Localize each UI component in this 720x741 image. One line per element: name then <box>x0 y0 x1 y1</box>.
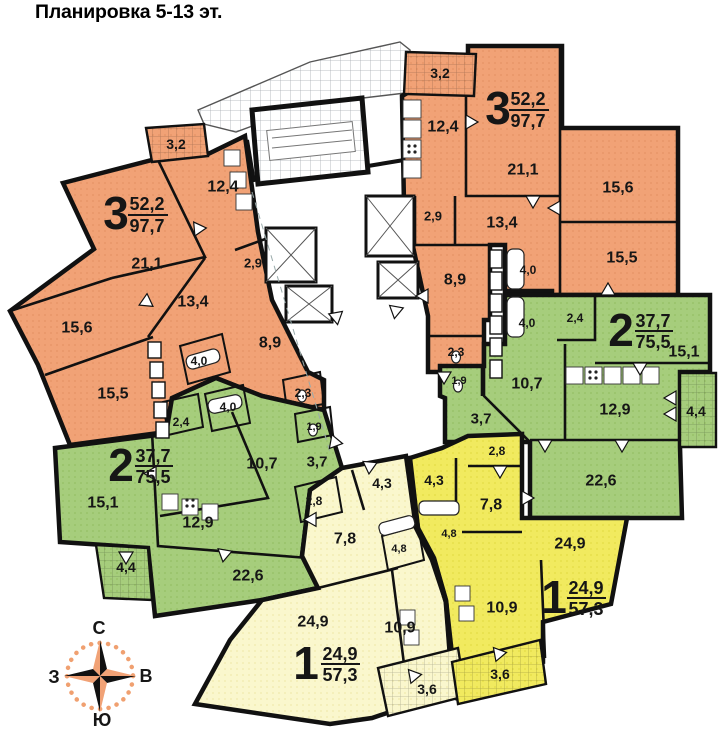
apartment-area-living: 52,2 <box>129 194 164 214</box>
apartment-type-label: 3 <box>103 187 129 239</box>
room-label: 4,0 <box>220 400 237 414</box>
apartment-type-label: 2 <box>108 439 134 491</box>
room-label: 2,9 <box>244 256 262 271</box>
room-label: 2,4 <box>173 415 190 429</box>
room-label: 3,6 <box>490 666 510 682</box>
elevator-shaft <box>266 228 316 282</box>
room-label: 4,3 <box>424 472 444 488</box>
room-label: 3,7 <box>471 411 492 428</box>
room-label: 2,9 <box>424 209 442 224</box>
bathtub-icon <box>419 501 459 515</box>
apartment-area-total: 97,7 <box>129 216 164 236</box>
room-label: 2,4 <box>567 311 584 325</box>
room-label: 3,2 <box>166 136 186 152</box>
apartment-type-label: 1 <box>293 637 319 689</box>
apartment-area-living: 52,2 <box>510 89 545 109</box>
room-label: 15,1 <box>87 495 118 512</box>
room-label: 10,9 <box>384 620 415 637</box>
room-label: 15,5 <box>97 386 128 403</box>
room-label: 4,4 <box>116 559 136 575</box>
compass-letter: Ю <box>93 710 112 730</box>
apartment-area-total: 75,5 <box>635 332 670 352</box>
room-label: 15,6 <box>602 180 633 197</box>
apartment-area-living: 37,7 <box>635 311 670 331</box>
apartment-type-label: 3 <box>485 82 511 134</box>
room-label: 3,7 <box>307 454 328 471</box>
room-label: 21,1 <box>131 256 162 273</box>
room-label: 24,9 <box>297 614 328 631</box>
apartment-area-total: 75,5 <box>135 467 170 487</box>
room-label: 2,3 <box>295 386 312 400</box>
room-label: 1,9 <box>451 375 466 387</box>
room-label: 2,8 <box>306 494 323 508</box>
room-label: 4,8 <box>391 543 406 555</box>
room-label: 15,5 <box>606 250 637 267</box>
room-label: 12,4 <box>207 179 238 196</box>
floor-plan: 3,212,421,113,415,615,58,92,94,02,3352,2… <box>0 0 720 741</box>
room-label: 24,9 <box>554 536 585 553</box>
elevator-shafts <box>266 196 418 322</box>
compass-letter: С <box>93 618 106 638</box>
room-label: 12,4 <box>427 119 458 136</box>
apartment-type-label: 1 <box>541 571 567 623</box>
room-label: 8,9 <box>259 335 281 352</box>
room-label: 10,7 <box>511 376 542 393</box>
room-label: 2,8 <box>489 444 506 458</box>
room-label: 7,8 <box>334 531 356 548</box>
room-label: 10,9 <box>486 600 517 617</box>
room-label: 15,1 <box>668 344 699 361</box>
room-label: 4,4 <box>686 403 706 419</box>
elevator-shaft <box>366 196 414 256</box>
apartment-area-living: 24,9 <box>322 644 357 664</box>
room-label: 7,8 <box>480 497 502 514</box>
compass-rose <box>64 640 136 712</box>
room-label: 21,1 <box>507 162 538 179</box>
apartment-area-living: 37,7 <box>135 446 170 466</box>
compass-letter: В <box>140 666 153 686</box>
room-label: 1,9 <box>306 421 321 433</box>
room-label: 13,4 <box>177 294 208 311</box>
room-label: 2,3 <box>448 345 465 359</box>
room-label: 4,0 <box>519 316 536 330</box>
room-label: 8,9 <box>444 272 466 289</box>
apartment-area-total: 97,7 <box>510 111 545 131</box>
room-label: 3,6 <box>417 681 437 697</box>
room-label: 4,3 <box>372 475 392 491</box>
compass-star <box>64 640 136 712</box>
room-label: 4,0 <box>191 354 208 368</box>
elevator-shaft <box>378 262 418 298</box>
room-label: 4,0 <box>520 263 537 277</box>
room-label: 4,8 <box>441 528 456 540</box>
room-label: 22,6 <box>585 473 616 490</box>
apartment-area-total: 57,3 <box>568 599 603 619</box>
room-label: 22,6 <box>232 568 263 585</box>
room-label: 15,6 <box>61 320 92 337</box>
apartment-area-total: 57,3 <box>322 665 357 685</box>
room-label: 12,9 <box>182 515 213 532</box>
compass-letter: З <box>48 667 59 687</box>
apartment-type-label: 2 <box>608 304 634 356</box>
elevator-shaft <box>286 286 332 322</box>
room-label: 3,2 <box>430 65 450 81</box>
room-label: 12,9 <box>599 402 630 419</box>
stairwell <box>252 98 368 184</box>
apartment-area-living: 24,9 <box>568 578 603 598</box>
room-label: 13,4 <box>486 215 517 232</box>
room-label: 10,7 <box>246 456 277 473</box>
